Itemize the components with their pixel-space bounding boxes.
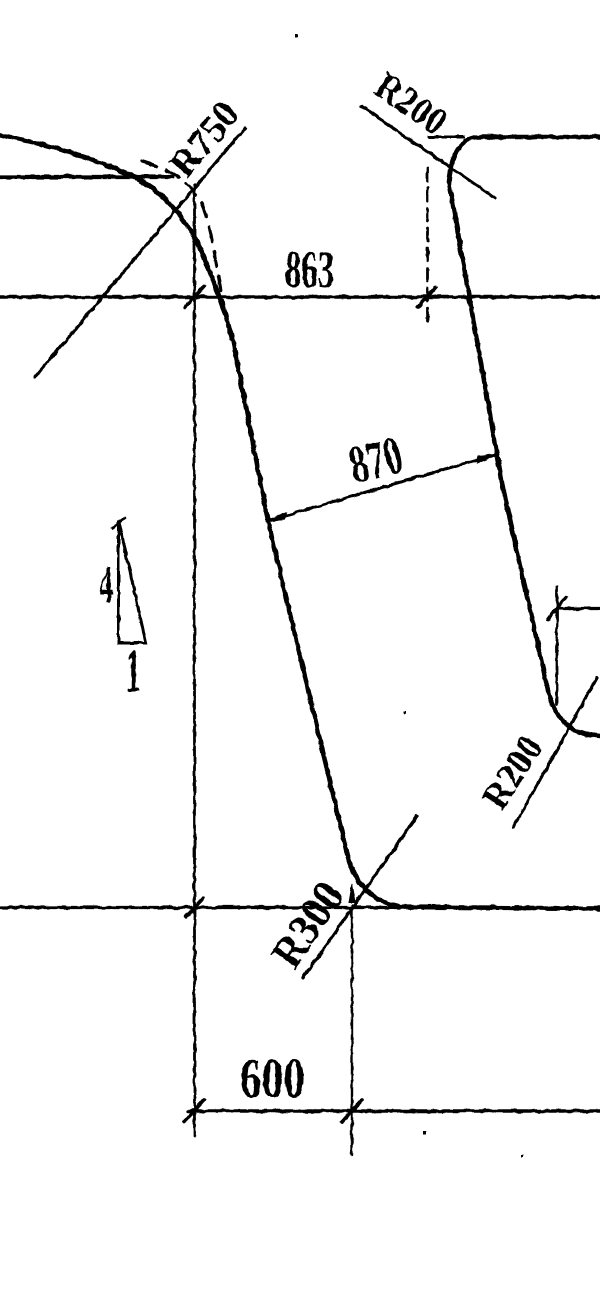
svg-text:R200: R200 bbox=[473, 728, 551, 816]
svg-text:600: 600 bbox=[240, 1047, 306, 1109]
svg-text:1: 1 bbox=[125, 637, 141, 705]
svg-text:870: 870 bbox=[343, 425, 408, 495]
svg-text:863: 863 bbox=[285, 240, 334, 299]
svg-text:R200: R200 bbox=[367, 64, 455, 143]
svg-text:4: 4 bbox=[99, 556, 112, 614]
